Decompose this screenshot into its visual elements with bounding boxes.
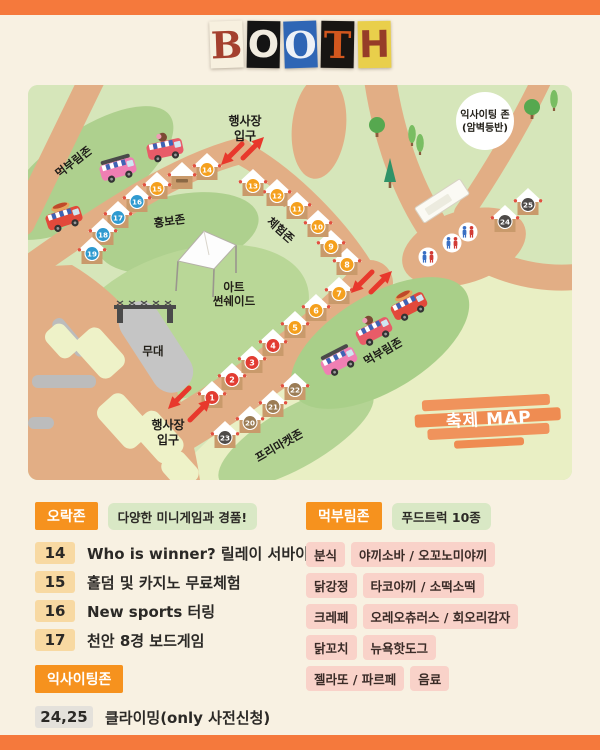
- svg-text:21: 21: [268, 402, 278, 411]
- svg-text:3: 3: [249, 358, 255, 367]
- art-shade-label-line1: 아트: [223, 280, 245, 294]
- booth-number-badge: 15: [35, 571, 75, 593]
- game-zone-item: 15홀덤 및 카지노 무료체험: [35, 571, 303, 593]
- restroom-icon: [443, 234, 462, 253]
- svg-text:8: 8: [344, 260, 350, 269]
- svg-text:6: 6: [313, 306, 319, 315]
- food-menu-row: 분식야끼소바 / 오꼬노미야끼: [306, 542, 582, 567]
- booth-number-badge: 14: [35, 542, 75, 564]
- svg-text:10: 10: [313, 222, 323, 231]
- food-menu-badge: 분식: [306, 542, 345, 567]
- stage-label: 무대: [142, 344, 163, 358]
- game-zone-item: 14Who is winner? 릴레이 서바이벌!: [35, 542, 303, 564]
- food-menu-row: 닭강정타코야끼 / 소떡소떡: [306, 573, 582, 598]
- svg-text:15: 15: [152, 184, 162, 193]
- title-letter-o-1: O: [246, 21, 280, 69]
- game-zone-badge: 오락존: [35, 502, 98, 530]
- svg-text:22: 22: [290, 385, 300, 394]
- title-letter-o-2: O: [283, 20, 318, 68]
- exciting-zone-item: 24,25 클라이밍(only 사전신청): [35, 706, 303, 728]
- restroom-icon: [459, 223, 478, 242]
- food-menu-row: 크레페오레오츄러스 / 회오리감자: [306, 604, 582, 629]
- top-accent-bar: [0, 0, 600, 15]
- map-illustration: 무대 아트 썬쉐이드 익사이팅 존 (암벽등반) 123456789101112…: [28, 85, 572, 480]
- game-item-text: 홀덤 및 카지노 무료체험: [87, 572, 241, 593]
- festival-booth-map-page: { "title": { "word": "BOOTH", "letters":…: [0, 0, 600, 750]
- food-menu-badge: 크레페: [306, 604, 357, 629]
- legend-game-zone: 오락존 다양한 미니게임과 경품! 14Who is winner? 릴레이 서…: [35, 502, 303, 735]
- game-item-text: Who is winner? 릴레이 서바이벌!: [87, 543, 330, 564]
- svg-text:24: 24: [500, 217, 510, 226]
- food-menu-badge: 음료: [410, 666, 449, 691]
- exciting-zone-badge: 익사이팅존: [35, 665, 123, 693]
- food-menu-row: 닭꼬치뉴욕핫도그: [306, 635, 582, 660]
- svg-text:19: 19: [87, 249, 97, 258]
- exciting-zone-line2: (암벽등반): [462, 121, 508, 134]
- game-zone-item: 17천안 8경 보드게임: [35, 629, 303, 651]
- game-zone-note-badge: 다양한 미니게임과 경품!: [108, 503, 257, 530]
- food-menu-badge: 야끼소바 / 오꼬노미야끼: [351, 542, 495, 567]
- food-menu-badge: 오레오츄러스 / 회오리감자: [363, 604, 519, 629]
- food-zone-badge: 먹부림존: [306, 502, 382, 530]
- svg-text:20: 20: [245, 418, 255, 427]
- svg-text:2: 2: [229, 375, 235, 384]
- food-menu-row: 젤라또 / 파르페음료: [306, 666, 582, 691]
- booth-number-badge: 16: [35, 600, 75, 622]
- bottom-accent-bar: [0, 735, 600, 750]
- food-menu-badge: 뉴욕핫도그: [363, 635, 437, 660]
- booth-number-badge: 17: [35, 629, 75, 651]
- svg-text:5: 5: [292, 323, 298, 332]
- game-item-text: 천안 8경 보드게임: [87, 630, 204, 651]
- food-menu-badge: 닭강정: [306, 573, 357, 598]
- svg-text:14: 14: [202, 165, 212, 174]
- svg-text:18: 18: [98, 230, 108, 239]
- food-zone-note-badge: 푸드트럭 10종: [392, 503, 491, 530]
- exciting-zone-bubble: 익사이팅 존 (암벽등반): [456, 92, 514, 150]
- food-menu-badge: 타코야끼 / 소떡소떡: [363, 573, 484, 598]
- restroom-icon: [419, 248, 438, 267]
- svg-text:16: 16: [132, 197, 142, 206]
- legend-food-zone: 먹부림존 푸드트럭 10종 분식야끼소바 / 오꼬노미야끼닭강정타코야끼 / 소…: [306, 502, 582, 697]
- svg-text:9: 9: [328, 242, 334, 251]
- svg-text:7: 7: [336, 289, 342, 298]
- food-zone-rows: 분식야끼소바 / 오꼬노미야끼닭강정타코야끼 / 소떡소떡크레페오레오츄러스 /…: [306, 542, 582, 691]
- food-menu-badge: 닭꼬치: [306, 635, 357, 660]
- svg-text:25: 25: [523, 200, 533, 209]
- title-letter-b-0: B: [209, 20, 244, 68]
- food-menu-badge: 젤라또 / 파르페: [306, 666, 404, 691]
- title-letter-h-4: H: [357, 21, 391, 69]
- exciting-zone-line1: 익사이팅 존: [460, 108, 509, 121]
- svg-text:17: 17: [113, 213, 123, 222]
- svg-text:13: 13: [248, 181, 258, 190]
- game-zone-item: 16New sports 터링: [35, 600, 303, 622]
- exciting-item-text: 클라이밍(only 사전신청): [105, 707, 270, 728]
- festival-map: 무대 아트 썬쉐이드 익사이팅 존 (암벽등반) 123456789101112…: [28, 85, 572, 480]
- game-zone-items: 14Who is winner? 릴레이 서바이벌!15홀덤 및 카지노 무료체…: [35, 542, 303, 651]
- exciting-item-number: 24,25: [35, 706, 93, 728]
- title-letter-t-3: T: [320, 21, 354, 69]
- svg-text:4: 4: [270, 341, 276, 350]
- svg-text:23: 23: [220, 433, 230, 442]
- svg-text:11: 11: [292, 204, 302, 213]
- booth-title: BOOTH: [0, 21, 600, 68]
- art-shade-label-line2: 썬쉐이드: [213, 294, 256, 308]
- svg-text:12: 12: [272, 191, 282, 200]
- game-item-text: New sports 터링: [87, 601, 215, 622]
